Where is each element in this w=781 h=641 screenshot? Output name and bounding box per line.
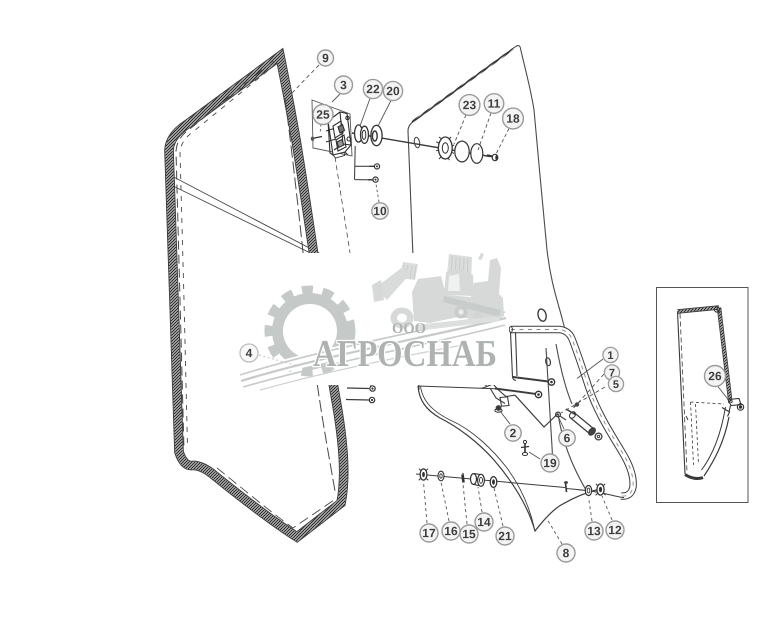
svg-text:2: 2 xyxy=(510,426,517,440)
svg-text:12: 12 xyxy=(608,523,622,537)
svg-text:26: 26 xyxy=(708,369,722,383)
svg-text:15: 15 xyxy=(462,527,476,541)
svg-text:4: 4 xyxy=(246,346,253,360)
svg-text:10: 10 xyxy=(373,204,387,218)
svg-text:АГРОСНАБ: АГРОСНАБ xyxy=(313,333,497,375)
svg-text:18: 18 xyxy=(506,112,520,126)
svg-text:3: 3 xyxy=(340,78,347,92)
svg-text:6: 6 xyxy=(564,431,571,445)
svg-text:25: 25 xyxy=(316,108,330,122)
svg-text:8: 8 xyxy=(563,546,570,560)
svg-text:9: 9 xyxy=(322,51,329,65)
svg-text:11: 11 xyxy=(488,97,501,111)
svg-text:19: 19 xyxy=(543,456,557,470)
svg-text:16: 16 xyxy=(444,524,458,538)
svg-text:13: 13 xyxy=(587,524,601,538)
svg-text:22: 22 xyxy=(366,82,380,96)
svg-text:5: 5 xyxy=(613,379,619,391)
svg-text:21: 21 xyxy=(498,529,512,543)
svg-text:20: 20 xyxy=(386,84,400,98)
svg-text:17: 17 xyxy=(422,526,436,540)
svg-text:1: 1 xyxy=(607,350,613,362)
svg-text:23: 23 xyxy=(463,98,477,112)
svg-text:14: 14 xyxy=(477,515,491,529)
